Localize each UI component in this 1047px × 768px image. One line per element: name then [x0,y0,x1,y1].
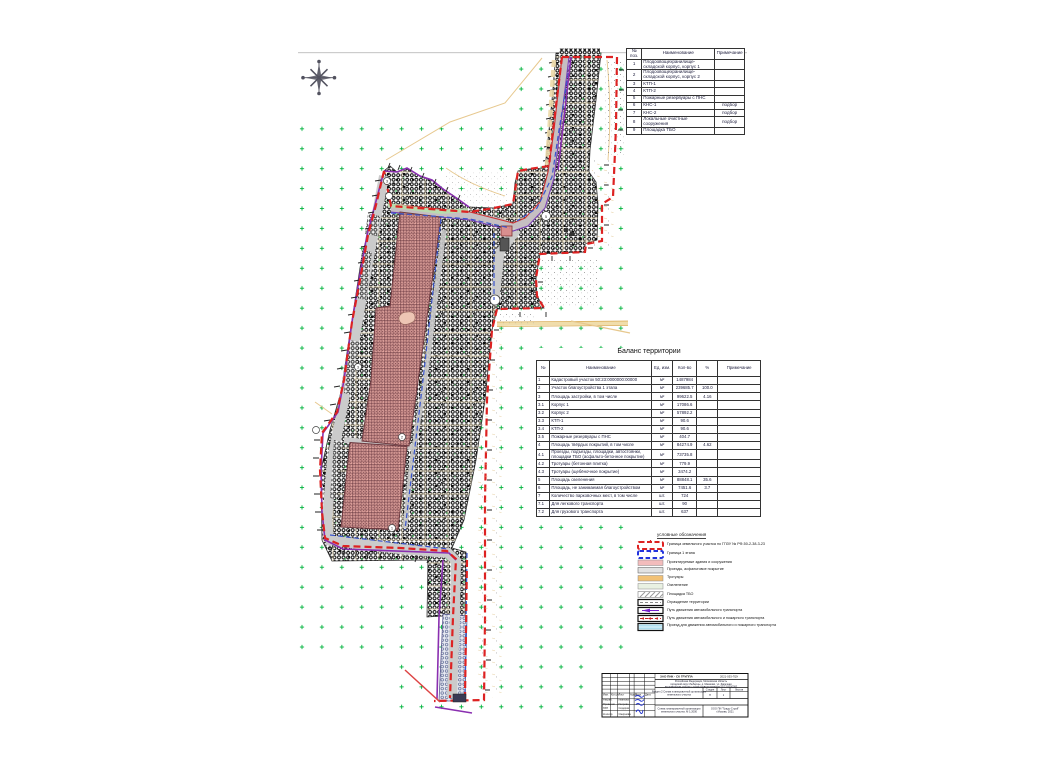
svg-text:Изм.: Изм. [603,693,609,697]
svg-text:г.Москва, 2021: г.Москва, 2021 [716,710,734,714]
svg-text:Иванова: Иванова [619,698,630,702]
svg-text:Разраб.: Разраб. [603,698,613,702]
svg-text:Дата: Дата [645,693,651,697]
svg-text:Проверил: Проверил [603,702,615,706]
svg-text:Лист: Лист [619,693,625,697]
svg-text:ГИП: ГИП [603,706,608,710]
svg-text:Стадия: Стадия [706,688,715,691]
svg-text:Листов: Листов [735,688,744,691]
svg-text:П: П [709,694,711,697]
svg-text:Н.контр.: Н.контр. [603,712,613,716]
svg-text:на земельном участке с кадастр: на земельном участке с кадастровым номер… [665,685,738,688]
svg-text:Смирнова: Смирнова [619,712,632,716]
svg-text:Петрова: Петрова [619,702,630,706]
svg-text:ЗАО ПИК - СК ГРУППА: ЗАО ПИК - СК ГРУППА [660,675,694,679]
svg-text:Лист: Лист [721,688,727,691]
svg-text:2021-053-ПЗУ: 2021-053-ПЗУ [720,675,738,679]
svg-text:Сидоров: Сидоров [619,706,630,710]
svg-text:земельного участка. М 1:2000: земельного участка. М 1:2000 [661,710,698,714]
svg-text:земельного участка: земельного участка [667,694,691,697]
